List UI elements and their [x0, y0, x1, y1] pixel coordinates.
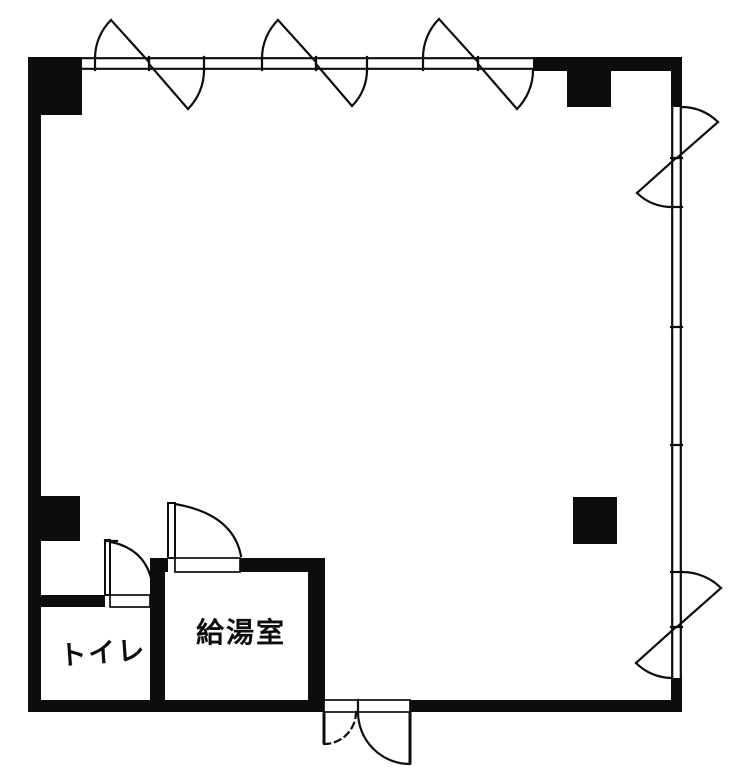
toilet-room-label: トイレ [58, 635, 147, 671]
kitchenette-right-wall [308, 558, 325, 712]
left-wall [28, 57, 41, 712]
kitchenette-room-label: 給湯室 [196, 616, 286, 648]
top-right-column [567, 71, 611, 107]
toilet-partition-wall [41, 595, 105, 607]
door-threshold [110, 595, 150, 607]
floor-plan: トイレ 給湯室 [0, 0, 732, 780]
top-wall-right-segment [533, 57, 682, 71]
top-left-column [28, 57, 82, 115]
door-leaf [105, 540, 110, 595]
entrance-threshold [324, 700, 410, 712]
door-leaf [168, 503, 175, 558]
right-wall-top-corner [671, 57, 682, 107]
freestanding-column [573, 497, 617, 544]
bottom-wall-right-segment [410, 700, 682, 712]
door-threshold [175, 558, 240, 572]
mid-left-column [41, 496, 80, 541]
kitchenette-top-wall-left [150, 558, 168, 572]
bottom-wall-left-segment [28, 700, 324, 712]
